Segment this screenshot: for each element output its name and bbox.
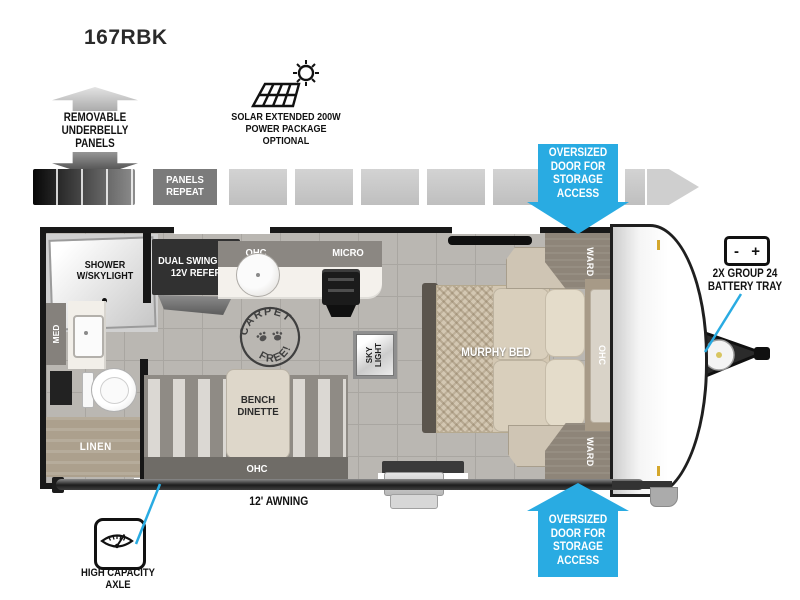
dinette-label: BENCH DINETTE — [229, 394, 286, 418]
bathroom-wall-top — [143, 233, 151, 303]
burner — [328, 278, 354, 281]
dinette-ohc-label: OHC — [229, 463, 285, 475]
underbelly-label: REMOVABLE UNDERBELLY PANELS — [48, 112, 143, 151]
micro-label: MICRO — [321, 247, 375, 259]
marker-light — [657, 466, 660, 476]
battery-plus: + — [751, 244, 760, 259]
arrow-down-icon — [527, 202, 629, 234]
panels-repeat-badge: PANELS REPEAT — [153, 169, 217, 205]
ward-bottom-label: WARD — [585, 437, 595, 467]
front-cap — [610, 224, 708, 497]
bed-pillows — [545, 287, 585, 429]
marker-light — [657, 240, 660, 250]
skylight: SKY LIGHT — [353, 331, 397, 379]
bathroom-counter — [68, 301, 106, 369]
wardrobe-bottom-label-wrap: WARD — [580, 427, 600, 477]
toilet-seat — [100, 377, 129, 404]
solar-package-label: SOLAR EXTENDED 200W POWER PACKAGE OPTION… — [228, 112, 345, 147]
murphy-bed-label: MURPHY BED — [444, 347, 548, 359]
arrow-up-icon — [527, 483, 629, 511]
bathroom-window — [50, 371, 72, 405]
linen-label: LINEN — [80, 441, 112, 453]
paw-print-icon — [255, 325, 285, 347]
floorplan-page: 167RBK REMOVABLE UNDERBELLY PANELS SOLAR… — [0, 0, 800, 600]
medicine-cabinet: MED — [46, 303, 66, 365]
axle-label: HIGH CAPACITY AXLE — [77, 567, 160, 592]
entry-step — [390, 494, 438, 509]
roof-vent — [448, 236, 532, 245]
oversized-door-bottom-label: OVERSIZED DOOR FOR STORAGE ACCESS — [543, 514, 613, 568]
bathroom-sink — [73, 315, 104, 358]
burner — [328, 289, 354, 292]
sink-drain — [256, 273, 260, 277]
kitchen-sink — [236, 253, 280, 297]
solar-panel-icon — [246, 58, 330, 112]
front-ohc-label: OHC — [597, 345, 607, 365]
oversized-door-top-label: OVERSIZED DOOR FOR STORAGE ACCESS — [543, 147, 613, 201]
strip-arrow-tip — [647, 169, 699, 205]
pillow — [545, 289, 585, 357]
murphy-bed — [436, 285, 550, 433]
panel-segment — [295, 169, 353, 205]
pillow — [545, 359, 585, 427]
arrow-up-icon — [52, 87, 138, 111]
battery-minus: - — [734, 244, 739, 259]
toilet — [82, 367, 138, 411]
panels-repeat-label: PANELS REPEAT — [156, 175, 214, 198]
mattress-texture — [437, 286, 493, 432]
awning-bracket — [650, 487, 678, 507]
scale-icon — [94, 518, 146, 570]
panel-segment — [361, 169, 419, 205]
battery-icon: - + — [724, 236, 770, 266]
shower-label: SHOWER W/SKYLIGHT — [65, 260, 146, 282]
bench-dinette: BENCH DINETTE OHC — [144, 375, 348, 483]
battery-tray-label: 2X GROUP 24 BATTERY TRAY — [699, 268, 790, 294]
med-label: MED — [51, 325, 61, 344]
oversized-door-callout-bottom: OVERSIZED DOOR FOR STORAGE ACCESS — [527, 483, 629, 577]
panel-segment — [427, 169, 485, 205]
ward-top-label: WARD — [585, 247, 595, 277]
cooktop — [322, 269, 360, 305]
dark-panels — [33, 169, 135, 205]
dinette-table: BENCH DINETTE — [226, 369, 290, 459]
panel-segment — [229, 169, 287, 205]
trailer-floorplan: SHOWER W/SKYLIGHT MED LINEN DUAL SWINGIN… — [40, 227, 622, 489]
skylight-label: SKY LIGHT — [366, 337, 384, 373]
window-top-left — [174, 227, 270, 234]
front-ohc-label-wrap: OHC — [592, 327, 612, 383]
oversized-door-callout-top: OVERSIZED DOOR FOR STORAGE ACCESS — [527, 144, 629, 234]
sofa-cushion — [493, 360, 549, 432]
awning-label: 12' AWNING — [249, 496, 308, 509]
linen-cabinet: LINEN — [46, 417, 146, 477]
bench-left — [148, 379, 226, 457]
faucet — [84, 331, 88, 335]
coupler — [754, 347, 770, 360]
model-number: 167RBK — [84, 26, 168, 50]
